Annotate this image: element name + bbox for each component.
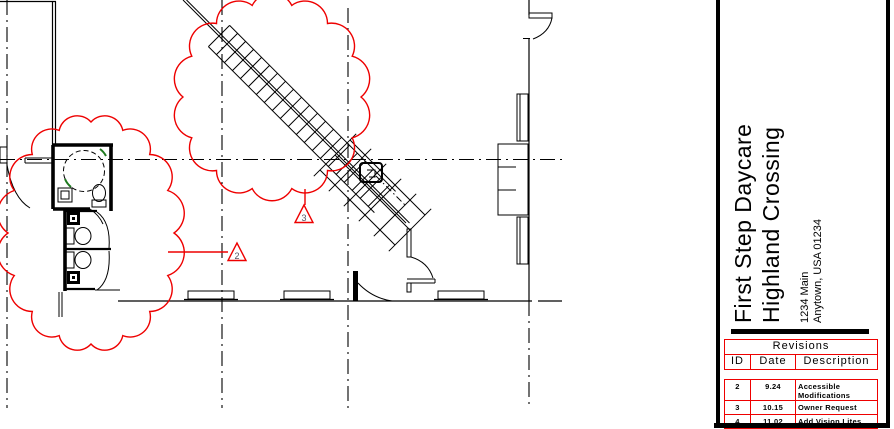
floor-plan-viewport[interactable]: 2 3 — [0, 0, 716, 428]
revisions-title: Revisions — [725, 340, 877, 354]
drawing-sheet: 2 3 First Step Daycare Highland Crossing… — [0, 0, 894, 428]
revision-id: 2 — [725, 380, 750, 400]
window — [517, 94, 528, 141]
titleblock-right-border — [886, 0, 890, 428]
revision-id: 3 — [725, 401, 750, 414]
titleblock-bottom-border — [714, 423, 890, 428]
sink — [67, 271, 80, 284]
stall-door — [97, 251, 109, 290]
toilet — [92, 185, 106, 208]
project-name-line1: First Step Daycare — [729, 124, 757, 323]
window — [517, 217, 528, 264]
revision-tag-3: 3 — [295, 205, 313, 223]
revisions-table: 2 9.24 Accessible Modifications 3 10.15 … — [724, 379, 878, 429]
col-header-date: Date — [750, 355, 795, 369]
revision-description: Accessible Modifications — [795, 380, 877, 400]
revisions-header-table: Revisions ID Date Description — [724, 339, 878, 370]
sink — [67, 212, 80, 225]
exterior-walls — [0, 0, 562, 317]
accessible-restroom — [53, 145, 113, 224]
revision-date: 9.24 — [750, 380, 795, 400]
toilet — [66, 252, 91, 269]
titleblock-left-border — [716, 0, 720, 428]
project-name-line2: Highland Crossing — [757, 124, 785, 323]
revision-row: 3 10.15 Owner Request — [725, 400, 877, 414]
revision-tag-2-number: 2 — [234, 251, 239, 261]
revision-date: 10.15 — [750, 401, 795, 414]
interior-door — [407, 229, 435, 292]
revision-cloud-2 — [0, 116, 184, 350]
ramp-assembly — [183, 0, 431, 251]
clearance-mark — [65, 179, 71, 187]
col-header-description: Description — [795, 355, 877, 369]
address-line2: Anytown, USA 01234 — [812, 219, 825, 323]
right-wall-fittings — [498, 13, 552, 264]
restroom-stalls — [65, 209, 120, 291]
swing-door-top — [523, 13, 552, 39]
project-title: First Step Daycare Highland Crossing — [729, 124, 785, 323]
revision-tag-3-number: 3 — [301, 213, 306, 223]
grid-lines — [0, 0, 562, 408]
revision-row: 2 9.24 Accessible Modifications — [725, 380, 877, 400]
sink — [58, 188, 72, 202]
interior-wall — [353, 271, 392, 301]
toilet — [66, 228, 91, 245]
left-entry-door — [0, 147, 53, 208]
clearance-mark — [100, 149, 106, 156]
project-address: 1234 Main Anytown, USA 01234 — [799, 219, 825, 323]
revision-tag-2: 2 — [228, 243, 246, 261]
col-header-id: ID — [725, 355, 750, 369]
bottom-windows — [184, 291, 488, 300]
casework — [498, 144, 528, 215]
address-line1: 1234 Main — [799, 219, 812, 323]
titleblock-divider — [731, 329, 869, 334]
revision-description: Owner Request — [795, 401, 877, 414]
